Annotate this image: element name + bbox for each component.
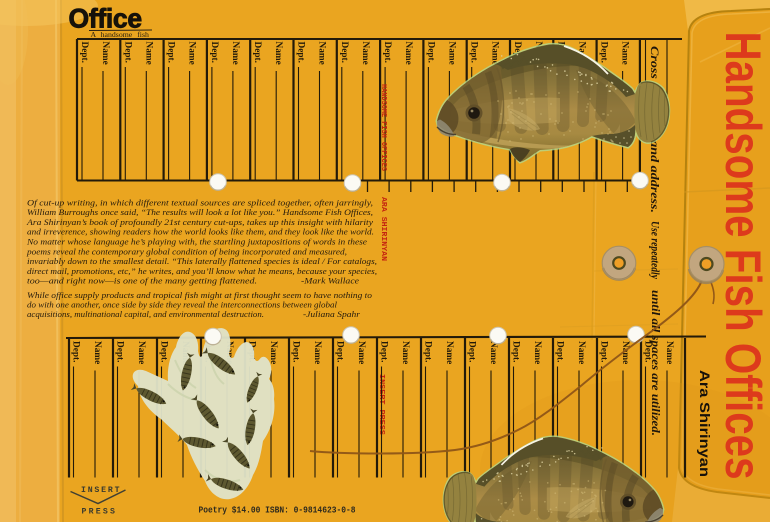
svg-text:-Juliana Spahr: -Juliana Spahr [303,309,361,319]
svg-text:Name: Name [400,341,410,364]
svg-text:Name: Name [143,42,153,65]
svg-text:Dept.: Dept. [166,42,176,63]
svg-text:William Burroughs once said, “: William Burroughs once said, “The result… [27,207,373,217]
svg-text:Name: Name [100,42,110,65]
svg-text:until all spaces are utilized.: until all spaces are utilized. [649,290,661,436]
svg-text:Dept.: Dept. [425,42,435,63]
svg-text:Name: Name [444,341,454,364]
svg-text:Name: Name [92,341,102,364]
svg-text:and irreverence, showing reade: and irreverence, showing readers how the… [27,227,374,237]
svg-text:Dept.: Dept. [379,341,389,362]
svg-text:Dept.: Dept. [382,42,392,63]
svg-text:Dept.: Dept. [291,341,301,362]
svg-text:Name: Name [446,42,456,65]
svg-text:Dept.: Dept. [511,341,521,362]
svg-text:Name: Name [136,341,146,364]
svg-text:Office: Office [69,4,142,34]
svg-text:Dept.: Dept. [599,341,609,362]
svg-text:Ara Shirinyan: Ara Shirinyan [697,370,712,477]
svg-text:While office supply products a: While office supply products and tropica… [27,290,373,300]
svg-text:ARA SHIRINYAN: ARA SHIRINYAN [379,197,387,261]
svg-text:Name: Name [268,341,278,364]
svg-text:Dept.: Dept. [555,341,565,362]
svg-text:Dept.: Dept. [71,341,81,362]
svg-text:Name: Name [356,341,366,364]
svg-text:A handsome fish: A handsome fish [91,30,150,39]
svg-text:Use repeatedly: Use repeatedly [649,221,661,280]
svg-text:Name: Name [664,341,674,364]
svg-text:acquisitions, multinational ca: acquisitions, multinational capital, and… [27,309,264,319]
svg-text:invariably down to the smalles: invariably down to the smallest detail. … [27,256,377,266]
svg-text:Name: Name [187,42,197,65]
svg-text:Dept.: Dept. [79,42,89,63]
svg-text:No matter whose language he’s: No matter whose language he’s playing wi… [26,237,367,247]
svg-text:Name: Name [312,341,322,364]
svg-text:poems reveal the contemporary: poems reveal the contemporary global con… [26,246,347,256]
svg-text:Dept.: Dept. [423,341,433,362]
svg-text:Name: Name [360,42,370,65]
svg-text:do with one another, once side: do with one another, once side by side t… [27,300,338,310]
svg-text:Name: Name [403,42,413,65]
svg-text:Name: Name [317,42,327,65]
svg-text:Poetry $14.00 ISBN: 0-9814623-: Poetry $14.00 ISBN: 0-9814623-0-8 [199,506,356,516]
svg-text:PRESS: PRESS [82,508,118,517]
svg-text:Dept.: Dept. [122,42,132,63]
svg-text:Dept.: Dept. [252,42,262,63]
svg-text:Dept.: Dept. [599,42,609,63]
svg-text:Name: Name [273,42,283,65]
svg-text:Name: Name [620,42,630,65]
svg-text:direct mail, promotions, etc,”: direct mail, promotions, etc,” he writes… [27,266,377,276]
svg-text:Dept.: Dept. [335,341,345,362]
svg-text:Name: Name [488,341,498,364]
svg-text:Name: Name [532,341,542,364]
svg-text:Dept.: Dept. [339,42,349,63]
svg-text:Name: Name [576,341,586,364]
svg-text:Dept.: Dept. [115,341,125,362]
svg-text:Dept.: Dept. [159,341,169,362]
svg-text:Name: Name [230,42,240,65]
svg-text:Dept.: Dept. [643,341,653,362]
svg-text:Dept.: Dept. [296,42,306,63]
svg-text:Ara Shirinyan’s book of profou: Ara Shirinyan’s book of profoundly 21st … [26,217,373,227]
svg-text:Of cut-up writing, in which di: Of cut-up writing, in which different te… [27,197,373,207]
svg-text:INSERT: INSERT [81,486,121,495]
svg-text:-Mark Wallace: -Mark Wallace [301,276,359,286]
svg-text:Dept.: Dept. [209,42,219,63]
svg-text:Handsome Fish Offices: Handsome Fish Offices [715,32,770,480]
svg-text:too—and right now—is one of th: too—and right now—is one of the many get… [27,276,257,286]
svg-text:HANDSOME FISH OFFICES: HANDSOME FISH OFFICES [379,84,387,172]
svg-text:Dept.: Dept. [469,42,479,63]
svg-text:Dept.: Dept. [467,341,477,362]
